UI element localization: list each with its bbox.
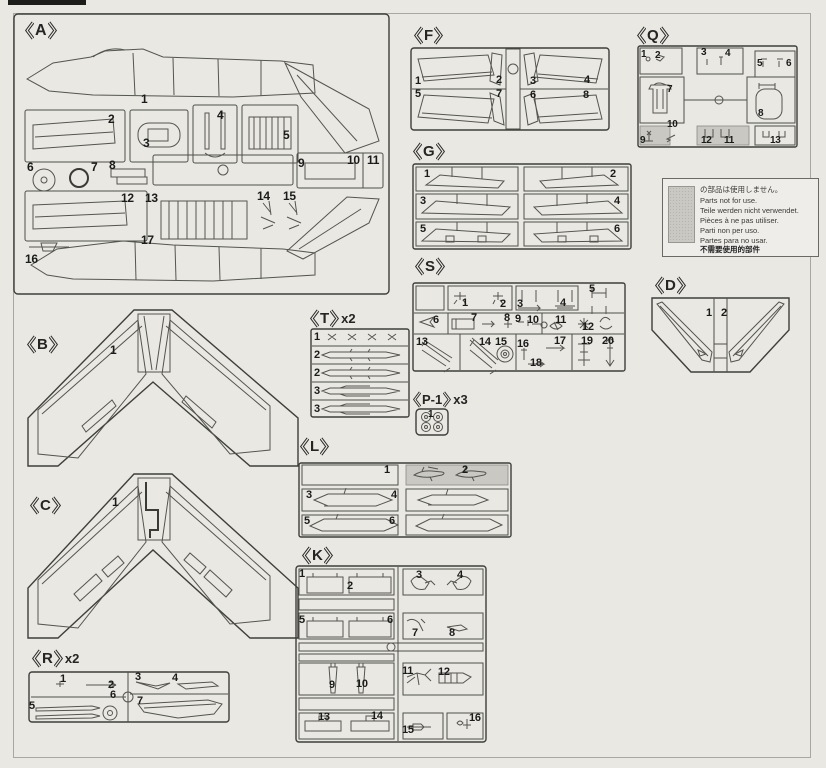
sprue-r-drawing — [28, 670, 230, 724]
part-number: 1 — [314, 332, 320, 343]
part-number: 16 — [517, 339, 529, 350]
part-number: 8 — [583, 90, 589, 101]
part-number: 3 — [416, 570, 422, 581]
part-number: 5 — [283, 129, 289, 141]
sprue-letter: Q — [646, 28, 660, 43]
sprue-f-drawing — [410, 47, 610, 131]
sprue-d-drawing — [648, 292, 793, 378]
part-number: 3 — [135, 672, 141, 683]
note-line-en: Parts not for use. — [700, 197, 757, 205]
part-number: 11 — [402, 666, 413, 677]
part-number: 5 — [757, 59, 762, 69]
sprue-letter: D — [664, 278, 677, 293]
part-number: 1 — [141, 93, 147, 105]
sprue-quantity: x3 — [453, 393, 467, 406]
part-number: 6 — [433, 315, 439, 326]
part-number: 1 — [706, 308, 712, 319]
part-number: 1 — [415, 76, 421, 87]
part-number: 6 — [389, 516, 395, 527]
part-number: 13 — [145, 192, 158, 204]
sprue-quantity: x2 — [65, 652, 79, 665]
sprue-t-drawing — [310, 328, 410, 418]
part-number: 4 — [560, 298, 566, 309]
sprue-letter: C — [39, 498, 52, 513]
sprue-letter: T — [319, 311, 330, 326]
part-number: 14 — [371, 711, 383, 722]
sprue-letter: K — [311, 548, 324, 563]
sprue-k: K 1 2 3 4 5 6 7 8 9 10 11 12 13 14 15 16 — [295, 565, 487, 743]
sprue-l-drawing — [298, 462, 512, 538]
part-number: 3 — [314, 386, 320, 397]
angle-bracket-right-icon — [324, 546, 333, 565]
part-number: 5 — [415, 89, 421, 100]
part-number: 3 — [701, 48, 706, 58]
sprue-t-label: T x2 — [310, 309, 356, 328]
part-number: 19 — [581, 336, 593, 347]
instruction-sheet-page: A 1 2 3 4 5 6 7 8 9 10 11 12 13 14 15 16… — [0, 0, 826, 768]
part-number: 9 — [329, 680, 335, 691]
part-number: 6 — [614, 224, 620, 235]
scan-edge-bar — [8, 0, 86, 5]
angle-bracket-left-icon — [27, 335, 36, 354]
part-number: 14 — [257, 190, 270, 202]
part-number: 2 — [496, 75, 502, 86]
part-number: 1 — [641, 50, 646, 60]
sprue-b-label: B — [27, 335, 58, 354]
part-number: 10 — [667, 120, 678, 130]
part-number: 1 — [462, 298, 468, 309]
sprue-letter: F — [423, 28, 434, 43]
angle-bracket-left-icon — [30, 496, 39, 515]
part-number: 3 — [143, 137, 149, 149]
part-number: 2 — [462, 465, 468, 476]
not-for-use-shade-swatch — [668, 186, 695, 243]
part-number: 7 — [496, 89, 502, 100]
part-number: 1 — [60, 674, 66, 685]
sprue-c: C 1 — [22, 472, 305, 644]
angle-bracket-left-icon — [415, 257, 424, 276]
part-number: 16 — [25, 253, 38, 265]
part-number: 2 — [108, 113, 114, 125]
part-number: 17 — [141, 234, 154, 246]
part-number: 7 — [91, 161, 97, 173]
angle-bracket-right-icon — [434, 26, 443, 45]
sprue-q-drawing — [637, 45, 798, 148]
note-line-zh: 不需要使用的部件 — [700, 246, 760, 254]
part-number: 15 — [495, 337, 507, 348]
angle-bracket-right-icon — [677, 276, 686, 295]
part-number: 1 — [110, 344, 116, 356]
sprue-letter: B — [36, 337, 49, 352]
part-number: 12 — [121, 192, 134, 204]
sprue-c-drawing — [22, 472, 305, 644]
sprue-a-label: A — [25, 21, 57, 40]
angle-bracket-right-icon — [443, 391, 451, 408]
part-number: 13 — [770, 136, 781, 146]
part-number: 4 — [457, 570, 463, 581]
angle-bracket-right-icon — [320, 437, 329, 456]
angle-bracket-left-icon — [414, 26, 423, 45]
note-line-fr: Pièces à ne pas utiliser. — [700, 217, 779, 225]
sprue-r-label: R x2 — [32, 649, 79, 668]
sprue-letter: G — [422, 144, 436, 159]
parts-not-for-use-note: の部品は使用しません。 Parts not for use. Teile wer… — [662, 178, 819, 257]
sprue-letter: P-1 — [421, 393, 443, 406]
part-number: 7 — [667, 85, 672, 95]
part-number: 2 — [347, 581, 353, 592]
angle-bracket-right-icon — [49, 335, 58, 354]
angle-bracket-left-icon — [310, 309, 319, 328]
sprue-s: S 1 2 3 4 5 6 7 8 9 10 11 12 13 14 15 16… — [412, 282, 626, 372]
angle-bracket-right-icon — [330, 309, 339, 328]
sprue-q-label: Q — [637, 26, 669, 45]
sprue-p1-label: P-1 x3 — [413, 391, 468, 408]
part-number: 3 — [517, 299, 523, 310]
sprue-k-label: K — [302, 546, 333, 565]
sprue-p1: P-1 x3 1 — [415, 408, 449, 436]
part-number: 14 — [479, 337, 491, 348]
part-number: 13 — [318, 712, 330, 723]
part-number: 2 — [314, 350, 320, 361]
sprue-f-label: F — [414, 26, 443, 45]
angle-bracket-left-icon — [25, 21, 34, 40]
note-line-de: Teile werden nicht verwendet. — [700, 207, 799, 215]
angle-bracket-left-icon — [413, 391, 421, 408]
part-number: 12 — [582, 322, 594, 333]
angle-bracket-left-icon — [655, 276, 664, 295]
angle-bracket-right-icon — [48, 21, 57, 40]
part-number: 4 — [172, 673, 178, 684]
part-number: 5 — [589, 284, 595, 295]
part-number: 11 — [367, 154, 379, 166]
sprue-d-label: D — [655, 276, 686, 295]
angle-bracket-right-icon — [54, 649, 63, 668]
part-number: 8 — [449, 628, 455, 639]
part-number: 5 — [420, 224, 426, 235]
part-number: 5 — [299, 615, 305, 626]
part-number: 9 — [515, 314, 521, 325]
part-number: 3 — [306, 490, 312, 501]
sprue-c-label: C — [30, 496, 61, 515]
part-number: 16 — [469, 713, 481, 724]
sprue-f: F 1 2 3 4 5 7 6 8 — [410, 47, 610, 131]
part-number: 4 — [614, 196, 620, 207]
angle-bracket-left-icon — [302, 546, 311, 565]
note-line-it: Parti non per uso. — [700, 227, 759, 235]
part-number: 6 — [387, 615, 393, 626]
angle-bracket-left-icon — [413, 142, 422, 161]
sprue-quantity: x2 — [341, 312, 355, 325]
part-number: 5 — [304, 516, 310, 527]
part-number: 6 — [530, 90, 536, 101]
part-number: 1 — [299, 569, 305, 580]
part-number: 10 — [527, 315, 539, 326]
part-number: 8 — [109, 159, 115, 171]
angle-bracket-right-icon — [436, 142, 445, 161]
part-number: 2 — [721, 308, 727, 319]
part-number: 18 — [530, 358, 542, 369]
part-number: 8 — [758, 109, 763, 119]
part-number: 12 — [701, 136, 712, 146]
sprue-t: T x2 1 2 2 3 3 — [310, 328, 410, 418]
note-line-ja: の部品は使用しません。 — [700, 186, 782, 194]
sprue-g-label: G — [413, 142, 445, 161]
sprue-b-drawing — [22, 308, 305, 470]
part-number: 9 — [640, 136, 645, 146]
part-number: 3 — [420, 196, 426, 207]
part-number: 10 — [347, 154, 360, 166]
sprue-b: B 1 — [22, 308, 305, 470]
part-number: 4 — [217, 109, 223, 121]
part-number: 15 — [283, 190, 296, 202]
part-number: 4 — [725, 49, 730, 59]
part-number: 20 — [602, 336, 614, 347]
sprue-a-drawing — [13, 13, 390, 295]
part-number: 5 — [29, 701, 35, 712]
part-number: 6 — [110, 690, 116, 701]
part-number: 7 — [137, 696, 143, 707]
part-number: 11 — [724, 136, 734, 146]
part-number: 3 — [314, 404, 320, 415]
part-number: 1 — [112, 496, 118, 508]
sprue-l: L 1 2 3 4 5 6 — [298, 462, 512, 538]
part-number: 7 — [471, 313, 477, 324]
part-number: 9 — [298, 157, 304, 169]
sprue-letter: S — [424, 259, 436, 274]
sprue-letter: A — [34, 23, 48, 39]
part-number: 3 — [530, 76, 536, 87]
angle-bracket-left-icon — [300, 437, 309, 456]
part-number: 15 — [402, 725, 414, 736]
angle-bracket-left-icon — [637, 26, 646, 45]
part-number: 1 — [384, 465, 390, 476]
sprue-l-label: L — [300, 437, 329, 456]
angle-bracket-right-icon — [660, 26, 669, 45]
part-number: 6 — [27, 161, 33, 173]
angle-bracket-left-icon — [32, 649, 41, 668]
part-number: 2 — [500, 299, 506, 310]
angle-bracket-right-icon — [436, 257, 445, 276]
sprue-q: Q 1 2 3 4 5 6 7 8 9 10 12 11 13 — [637, 45, 798, 148]
part-number: 6 — [786, 59, 791, 69]
note-line-es: Partes para no usar. — [700, 237, 768, 245]
angle-bracket-right-icon — [52, 496, 61, 515]
sprue-g: G 1 2 3 4 5 6 — [412, 163, 632, 250]
sprue-letter: L — [309, 439, 320, 454]
part-number: 2 — [655, 51, 660, 61]
sprue-r: R x2 1 2 3 4 5 6 7 — [28, 670, 230, 724]
part-number: 12 — [438, 667, 450, 678]
sprue-s-label: S — [415, 257, 445, 276]
part-number: 10 — [356, 679, 368, 690]
part-number: 2 — [314, 368, 320, 379]
part-number: 1 — [428, 410, 433, 420]
part-number: 2 — [610, 169, 616, 180]
part-number: 4 — [584, 75, 590, 86]
sprue-g-drawing — [412, 163, 632, 250]
part-number: 4 — [391, 490, 397, 501]
part-number: 13 — [416, 337, 428, 348]
sprue-letter: R — [41, 651, 54, 666]
part-number: 7 — [412, 628, 418, 639]
sprue-a: A 1 2 3 4 5 6 7 8 9 10 11 12 13 14 15 16… — [13, 13, 390, 295]
part-number: 1 — [424, 169, 430, 180]
part-number: 11 — [555, 315, 566, 326]
part-number: 8 — [504, 313, 510, 324]
sprue-d: D 1 2 — [648, 292, 793, 378]
part-number: 17 — [554, 336, 566, 347]
